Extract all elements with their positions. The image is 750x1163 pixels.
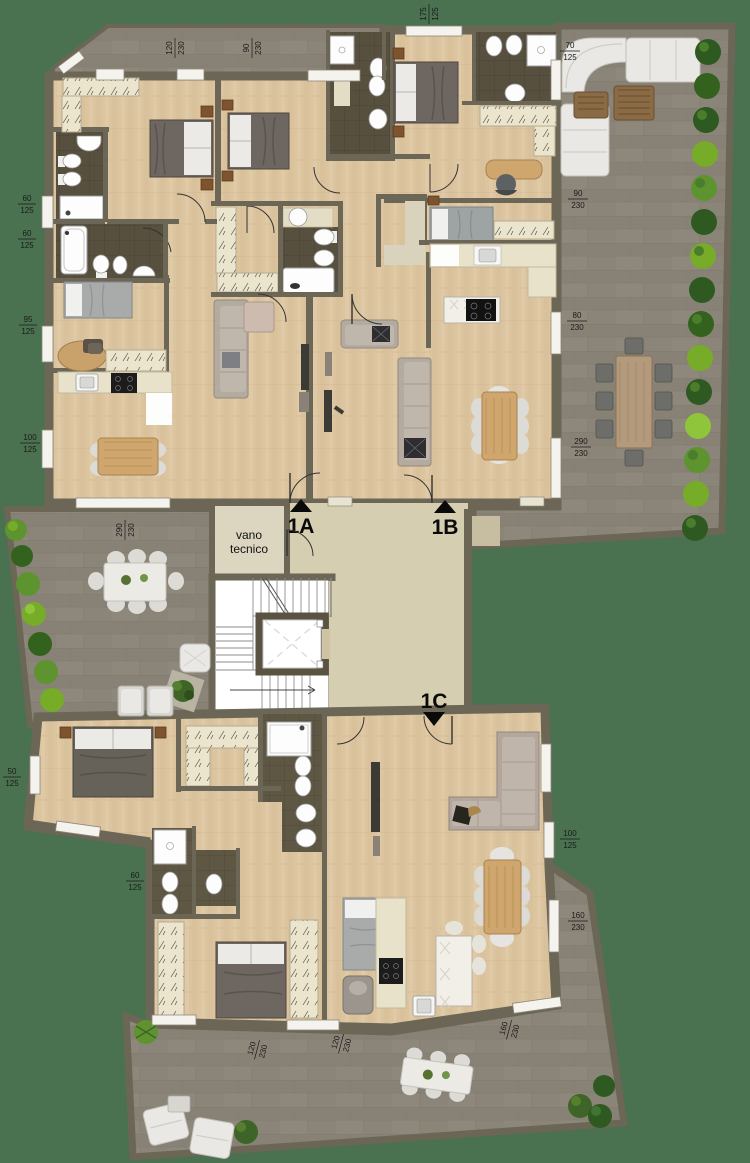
svg-text:125: 125 — [21, 327, 35, 336]
svg-text:70: 70 — [566, 41, 575, 50]
svg-text:1B: 1B — [432, 516, 459, 539]
svg-text:1C: 1C — [421, 690, 448, 713]
svg-text:95: 95 — [24, 315, 33, 324]
svg-text:50: 50 — [8, 767, 17, 776]
svg-text:125: 125 — [20, 241, 34, 250]
svg-text:tecnico: tecnico — [230, 542, 268, 556]
svg-text:230: 230 — [570, 323, 584, 332]
svg-text:80: 80 — [573, 311, 582, 320]
svg-text:120: 120 — [165, 41, 174, 55]
svg-text:230: 230 — [574, 449, 588, 458]
svg-text:90: 90 — [242, 43, 251, 52]
svg-text:230: 230 — [177, 41, 186, 55]
svg-text:125: 125 — [23, 445, 37, 454]
svg-text:230: 230 — [571, 923, 585, 932]
svg-text:vano: vano — [236, 528, 262, 542]
svg-text:90: 90 — [574, 189, 583, 198]
svg-text:230: 230 — [571, 201, 585, 210]
svg-text:125: 125 — [431, 7, 440, 21]
svg-text:125: 125 — [20, 206, 34, 215]
svg-text:290: 290 — [574, 437, 588, 446]
svg-text:290: 290 — [115, 523, 124, 537]
svg-text:60: 60 — [23, 194, 32, 203]
svg-text:160: 160 — [571, 911, 585, 920]
svg-text:175: 175 — [419, 7, 428, 21]
svg-text:100: 100 — [563, 829, 577, 838]
svg-text:230: 230 — [127, 523, 136, 537]
svg-text:60: 60 — [23, 229, 32, 238]
svg-text:125: 125 — [563, 841, 577, 850]
svg-text:60: 60 — [131, 871, 140, 880]
svg-text:230: 230 — [254, 41, 263, 55]
svg-text:125: 125 — [128, 883, 142, 892]
svg-text:125: 125 — [5, 779, 19, 788]
svg-text:125: 125 — [563, 53, 577, 62]
svg-text:100: 100 — [23, 433, 37, 442]
